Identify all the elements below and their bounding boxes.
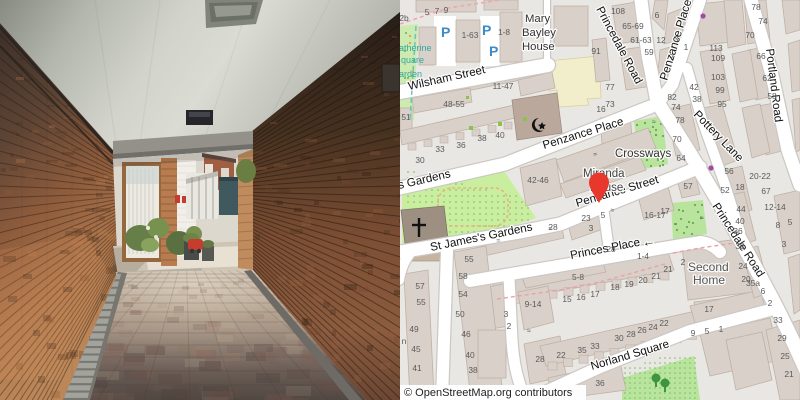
svg-text:30: 30 [735, 241, 745, 251]
svg-text:59: 59 [644, 47, 654, 57]
svg-text:21: 21 [663, 264, 673, 274]
svg-text:55: 55 [416, 297, 426, 307]
svg-text:Crossways: Crossways [615, 148, 671, 160]
svg-text:17: 17 [660, 206, 670, 216]
svg-text:36: 36 [733, 226, 743, 236]
svg-text:23: 23 [581, 213, 591, 223]
svg-text:49: 49 [409, 324, 419, 334]
svg-text:n: n [402, 336, 407, 346]
svg-text:70: 70 [745, 30, 755, 40]
svg-text:P: P [482, 22, 491, 38]
svg-text:33: 33 [435, 144, 445, 154]
svg-text:55: 55 [464, 254, 474, 264]
svg-text:78: 78 [751, 2, 761, 12]
svg-text:20-22: 20-22 [749, 171, 771, 181]
svg-text:38: 38 [468, 365, 478, 375]
svg-text:P: P [489, 43, 498, 59]
svg-text:26: 26 [637, 325, 647, 335]
svg-text:24: 24 [648, 322, 658, 332]
svg-text:28: 28 [535, 354, 545, 364]
svg-text:95: 95 [717, 99, 727, 109]
svg-text:99: 99 [715, 85, 725, 95]
svg-text:15: 15 [562, 294, 572, 304]
svg-text:78: 78 [675, 115, 685, 125]
svg-text:3: 3 [782, 239, 787, 249]
svg-text:2: 2 [681, 257, 686, 267]
svg-text:67: 67 [761, 186, 771, 196]
svg-text:113: 113 [709, 43, 723, 53]
svg-text:21: 21 [784, 369, 794, 379]
svg-text:74: 74 [671, 102, 681, 112]
svg-text:Mary: Mary [525, 13, 550, 25]
svg-text:36: 36 [595, 378, 605, 388]
svg-text:18: 18 [735, 182, 745, 192]
svg-text:7: 7 [435, 6, 440, 16]
svg-text:58: 58 [767, 91, 777, 101]
svg-text:6: 6 [761, 286, 766, 296]
svg-text:66: 66 [756, 51, 766, 61]
svg-text:73: 73 [605, 99, 615, 109]
svg-text:22: 22 [659, 318, 669, 328]
svg-text:P: P [441, 24, 450, 40]
svg-text:2: 2 [507, 321, 512, 331]
svg-text:64: 64 [676, 153, 686, 163]
svg-text:28: 28 [548, 222, 558, 232]
svg-text:20: 20 [638, 275, 648, 285]
svg-text:35: 35 [577, 345, 587, 355]
svg-text:33: 33 [773, 315, 783, 325]
svg-text:25: 25 [780, 351, 790, 361]
svg-text:46: 46 [461, 329, 471, 339]
svg-text:Home: Home [693, 273, 725, 287]
svg-text:16: 16 [576, 292, 586, 302]
svg-text:9: 9 [444, 5, 449, 15]
svg-text:58: 58 [458, 271, 468, 281]
svg-text:21: 21 [651, 271, 661, 281]
svg-text:8: 8 [776, 220, 781, 230]
svg-text:30: 30 [415, 155, 425, 165]
svg-text:70: 70 [672, 134, 682, 144]
svg-text:5: 5 [788, 217, 793, 227]
svg-text:57: 57 [683, 181, 693, 191]
svg-text:56: 56 [724, 166, 734, 176]
svg-text:© OpenStreetMap.org contributo: © OpenStreetMap.org contributors [404, 387, 573, 399]
svg-text:57: 57 [415, 281, 425, 291]
svg-text:74: 74 [758, 16, 768, 26]
svg-text:Bayley: Bayley [522, 27, 556, 39]
svg-text:38: 38 [477, 133, 487, 143]
svg-text:18: 18 [610, 282, 620, 292]
svg-text:91: 91 [591, 46, 601, 56]
svg-text:12-14: 12-14 [764, 202, 786, 212]
svg-text:≈: ≈ [700, 215, 704, 222]
svg-text:41: 41 [412, 363, 422, 373]
svg-text:16: 16 [596, 104, 606, 114]
svg-text:24: 24 [738, 261, 748, 271]
svg-text:33: 33 [590, 341, 600, 351]
svg-text:1-8: 1-8 [498, 27, 510, 37]
svg-text:29: 29 [777, 333, 787, 343]
svg-text:≈: ≈ [652, 119, 656, 126]
svg-text:12: 12 [656, 35, 666, 45]
svg-text:House: House [522, 41, 555, 53]
svg-text:3: 3 [674, 34, 679, 44]
svg-text:108: 108 [611, 6, 625, 16]
svg-text:1-63: 1-63 [462, 30, 479, 40]
svg-text:40: 40 [465, 350, 475, 360]
svg-text:77: 77 [605, 82, 615, 92]
svg-text:54: 54 [458, 289, 468, 299]
svg-text:≈: ≈ [527, 328, 531, 335]
svg-text:1: 1 [684, 42, 689, 52]
svg-text:1-4: 1-4 [637, 251, 649, 261]
svg-text:35a: 35a [746, 278, 760, 288]
svg-text:9-14: 9-14 [525, 299, 542, 309]
svg-text:5: 5 [705, 326, 710, 336]
svg-text:52: 52 [720, 185, 730, 195]
svg-text:1: 1 [719, 324, 724, 334]
svg-text:45: 45 [411, 344, 421, 354]
svg-text:arden: arden [399, 69, 422, 79]
svg-text:2: 2 [768, 298, 773, 308]
svg-text:17: 17 [590, 289, 600, 299]
svg-text:5: 5 [601, 210, 606, 220]
svg-text:6: 6 [655, 10, 660, 20]
svg-text:103: 103 [711, 72, 725, 82]
svg-text:28: 28 [606, 244, 616, 254]
svg-text:17: 17 [704, 304, 714, 314]
svg-text:44: 44 [736, 204, 746, 214]
svg-text:2b: 2b [399, 13, 409, 23]
svg-text:28: 28 [626, 329, 636, 339]
svg-text:11-47: 11-47 [493, 81, 514, 91]
svg-text:50: 50 [455, 309, 465, 319]
svg-text:48-55: 48-55 [443, 99, 465, 109]
svg-text:9: 9 [691, 328, 696, 338]
svg-text:42: 42 [689, 82, 699, 92]
svg-text:42-46: 42-46 [527, 175, 549, 185]
svg-text:7: 7 [670, 52, 675, 62]
svg-text:65-69: 65-69 [622, 21, 644, 31]
svg-text:3: 3 [504, 309, 509, 319]
svg-text:atherine: atherine [399, 43, 432, 53]
svg-text:quare: quare [401, 55, 424, 65]
svg-text:30: 30 [614, 333, 624, 343]
svg-text:40: 40 [495, 130, 505, 140]
svg-text:82: 82 [667, 92, 677, 102]
svg-text:38: 38 [692, 94, 702, 104]
svg-text:22: 22 [556, 350, 566, 360]
svg-text:5: 5 [425, 7, 430, 17]
svg-text:3: 3 [589, 223, 594, 233]
svg-text:36: 36 [456, 140, 466, 150]
svg-text:109: 109 [711, 53, 725, 63]
svg-text:51: 51 [401, 112, 411, 122]
svg-text:40: 40 [735, 216, 745, 226]
svg-text:5-8: 5-8 [572, 272, 584, 282]
svg-text:61-63: 61-63 [630, 35, 652, 45]
svg-text:19: 19 [624, 279, 634, 289]
svg-text:62: 62 [762, 73, 772, 83]
svg-text:Second: Second [688, 260, 729, 274]
